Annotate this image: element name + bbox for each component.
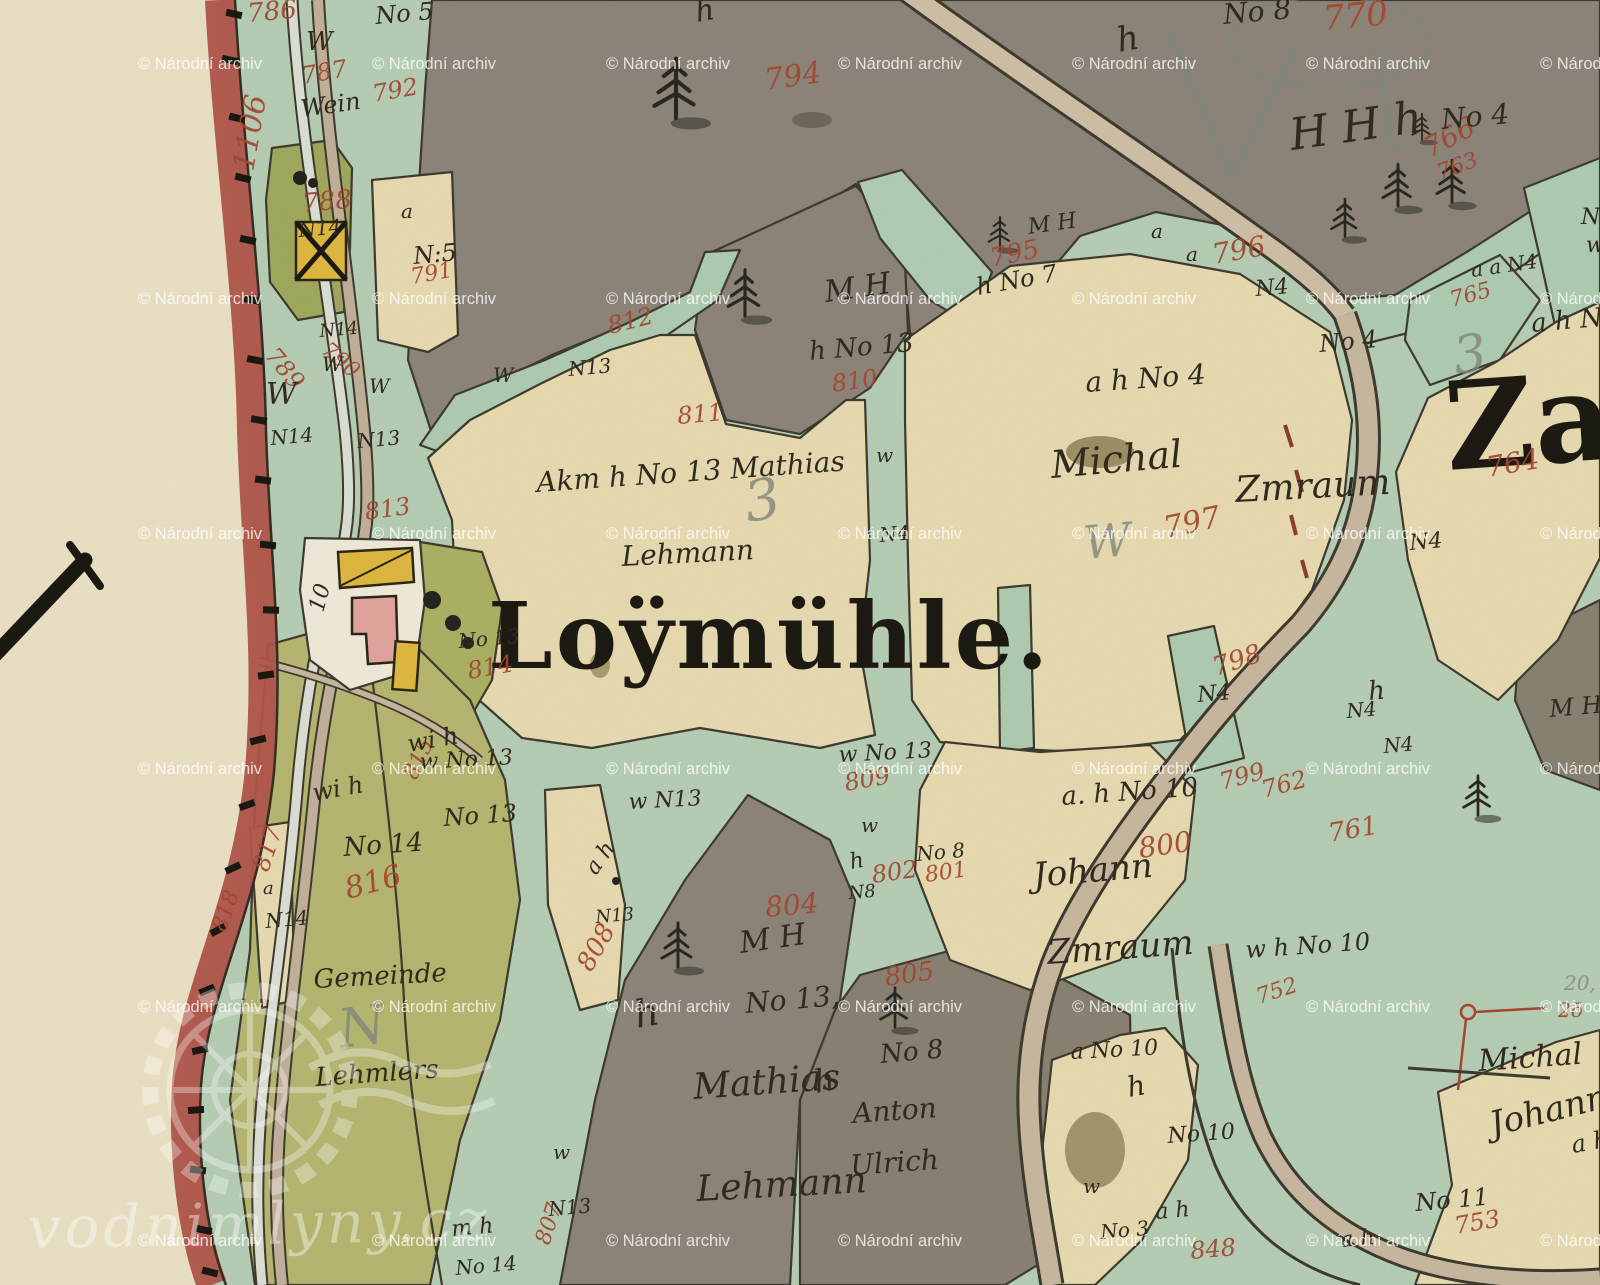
cadastral-map-scan: Loÿmühle. Zau 78678779211067887917897908… [0,0,1600,1285]
archive-watermark: © Národní archiv [372,55,497,73]
archive-watermark: © Národní archiv [1540,525,1600,543]
archive-watermark: © Národní archiv [838,290,963,308]
archive-watermark: © Národní archiv [1072,1232,1197,1250]
vodnimlyny-text: vodnimlyny.cz [27,1186,491,1262]
archive-watermark: © Národní archiv [1540,998,1600,1016]
archive-watermark: © Národní archiv [1306,760,1431,778]
archive-watermark: © Národní archiv [1072,55,1197,73]
archive-watermark: © Národní archiv [1540,1232,1600,1250]
archive-watermark: © Národní archiv [138,760,263,778]
archive-watermark: © Národní archiv [1072,998,1197,1016]
archive-watermark: © Národní archiv [138,290,263,308]
archive-watermark: © Národní archiv [838,760,963,778]
archive-watermark: © Národní archiv [1306,998,1431,1016]
archive-watermark: © Národní archiv [1072,290,1197,308]
archive-watermark: © Národní archiv [606,55,731,73]
archive-watermark: © Národní archiv [838,1232,963,1250]
archive-watermark: © Národní archiv [1306,525,1431,543]
archive-watermark: © Národní archiv [372,290,497,308]
archive-watermark: © Národní archiv [138,55,263,73]
archive-watermark: © Národní archiv [606,1232,731,1250]
archive-watermark: © Národní archiv [138,525,263,543]
archive-watermark: © Národní archiv [1306,55,1431,73]
archive-watermark: © Národní archiv [606,760,731,778]
archive-watermark: © Národní archiv [1540,760,1600,778]
archive-watermark: © Národní archiv [372,525,497,543]
archive-watermark: © Národní archiv [1072,760,1197,778]
archive-watermark: © Národní archiv [1306,290,1431,308]
archive-watermark: © Národní archiv [606,998,731,1016]
archive-watermark: © Národní archiv [1306,1232,1431,1250]
map-canvas: Loÿmühle. Zau 78678779211067887917897908… [0,0,1600,1285]
archive-watermark: © Národní archiv [372,998,497,1016]
archive-watermark: © Národní archiv [1540,290,1600,308]
archive-watermark: © Národní archiv [1540,55,1600,73]
archive-watermark: © Národní archiv [838,55,963,73]
archive-watermark: © Národní archiv [606,290,731,308]
archive-watermark: © Národní archiv [372,760,497,778]
archive-watermark: © Národní archiv [838,525,963,543]
archive-watermark: © Národní archiv [838,998,963,1016]
archive-watermark: © Národní archiv [1072,525,1197,543]
archive-watermark: © Národní archiv [606,525,731,543]
